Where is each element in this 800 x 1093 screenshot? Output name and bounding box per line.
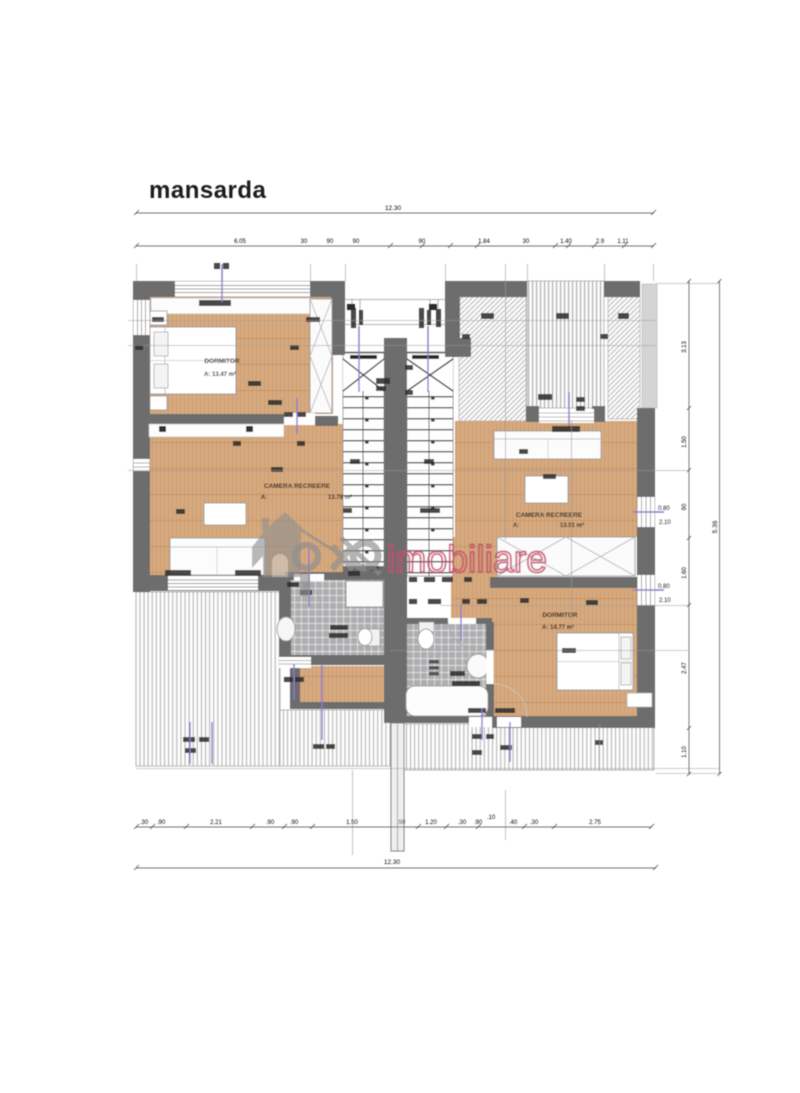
svg-text:0.80: 0.80 bbox=[658, 584, 670, 590]
svg-text:.90: .90 bbox=[290, 820, 299, 826]
svg-text:13.01 m²: 13.01 m² bbox=[560, 522, 584, 529]
svg-text:1.50: 1.50 bbox=[682, 436, 688, 448]
svg-text:1.10: 1.10 bbox=[682, 746, 688, 758]
svg-text:DORMITOR: DORMITOR bbox=[204, 358, 240, 365]
svg-text:2.75: 2.75 bbox=[589, 820, 601, 826]
svg-text:90: 90 bbox=[682, 503, 688, 510]
svg-text:.90: .90 bbox=[474, 820, 483, 826]
svg-text:.50: .50 bbox=[397, 820, 406, 826]
svg-text:2.10: 2.10 bbox=[659, 598, 671, 604]
svg-text:30: 30 bbox=[523, 239, 530, 245]
svg-text:90: 90 bbox=[353, 239, 360, 245]
svg-text:CAMERA RECREERE: CAMERA RECREERE bbox=[516, 512, 583, 519]
svg-text:A:: A: bbox=[513, 523, 519, 529]
svg-text:90: 90 bbox=[327, 239, 334, 245]
svg-text:A: 13.47 m²: A: 13.47 m² bbox=[204, 371, 236, 378]
svg-text:CAMERA RECREERE: CAMERA RECREERE bbox=[264, 483, 331, 490]
svg-text:.10: .10 bbox=[487, 815, 496, 821]
svg-text:mansarda: mansarda bbox=[149, 177, 267, 204]
svg-text:.90: .90 bbox=[266, 820, 275, 826]
svg-text:.40: .40 bbox=[509, 820, 518, 826]
svg-text:DORMITOR: DORMITOR bbox=[542, 612, 578, 619]
svg-text:2.10: 2.10 bbox=[659, 520, 671, 526]
svg-text:2.21: 2.21 bbox=[210, 820, 222, 826]
svg-text:A:: A: bbox=[261, 495, 267, 501]
svg-text:1.11: 1.11 bbox=[617, 239, 629, 245]
svg-text:1.50: 1.50 bbox=[346, 820, 358, 826]
svg-text:1.20: 1.20 bbox=[425, 820, 437, 826]
svg-text:30: 30 bbox=[301, 239, 308, 245]
svg-text:0.80: 0.80 bbox=[658, 506, 670, 512]
svg-text:12.30: 12.30 bbox=[384, 859, 401, 866]
svg-text:90: 90 bbox=[419, 239, 426, 245]
svg-text:5.36: 5.36 bbox=[712, 520, 719, 533]
svg-text:12.30: 12.30 bbox=[385, 205, 402, 212]
svg-text:.30: .30 bbox=[458, 820, 467, 826]
svg-text:.30: .30 bbox=[530, 820, 539, 826]
svg-text:A: 14.77 m²: A: 14.77 m² bbox=[542, 624, 574, 631]
svg-text:1.60: 1.60 bbox=[682, 567, 688, 579]
svg-text:2.9: 2.9 bbox=[596, 239, 605, 245]
svg-text:6.05: 6.05 bbox=[234, 239, 246, 245]
svg-text:.90: .90 bbox=[157, 820, 166, 826]
svg-text:imobiliare: imobiliare bbox=[387, 539, 547, 581]
svg-text:3.13: 3.13 bbox=[682, 341, 688, 353]
svg-text:2.47: 2.47 bbox=[682, 662, 688, 674]
svg-text:13.78 m²: 13.78 m² bbox=[328, 494, 352, 501]
svg-text:1.40: 1.40 bbox=[560, 239, 572, 245]
svg-text:.30: .30 bbox=[140, 820, 149, 826]
svg-text:1.84: 1.84 bbox=[478, 239, 490, 245]
